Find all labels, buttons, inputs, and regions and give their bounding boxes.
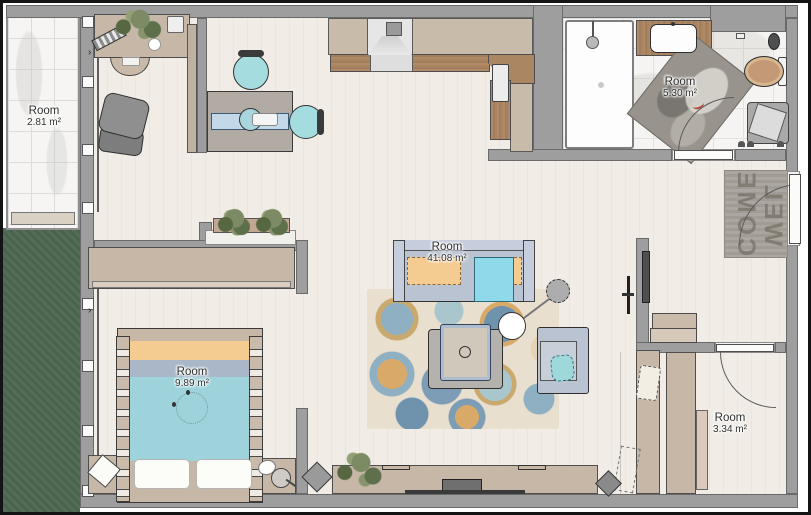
wall [533,5,563,160]
console-handle [518,465,546,470]
wall [735,149,786,161]
slippers-icon [777,141,784,147]
planter-plants [216,208,250,238]
kitchen-counter-front[interactable] [330,54,371,72]
window-handle-icon: › [88,48,91,58]
wall [296,240,308,294]
entry-door[interactable] [789,174,801,244]
wall [197,18,207,153]
desk-plants[interactable] [106,6,168,44]
closet-door[interactable] [716,344,774,352]
window[interactable] [82,202,94,214]
desk-box[interactable] [167,16,184,33]
window[interactable] [82,144,94,156]
cooktop-front [370,54,413,72]
wall [775,342,786,353]
bed-blanket-orange [130,341,252,361]
desk-pad [252,113,278,126]
window[interactable] [82,360,94,372]
bed-deco-dot [172,402,176,407]
tv-screen [405,490,525,494]
coffee-table-handle [459,346,471,358]
floor-plant[interactable] [328,445,388,495]
bedside-lamp[interactable] [271,468,291,488]
tv-bracket [622,293,634,296]
slippers-icon [747,141,754,147]
paper-holder-icon [736,33,745,39]
room-label-bedroom: Room 9.89 m² [152,366,232,389]
sink[interactable] [650,24,697,53]
sofa-armrest [523,240,535,302]
armchair-pillow [550,354,576,382]
toilet-brush-icon [768,33,780,50]
outdoor-grass [2,228,80,513]
slippers-icon [738,141,745,147]
shower-head-icon [586,36,599,49]
planter-plants [254,208,288,238]
hood-chimney [386,22,402,36]
toilet[interactable] [744,56,784,87]
kitchen-sink[interactable] [492,64,509,102]
room-label-living: Room 41.08 m² [407,241,487,264]
bed-rail [116,336,130,502]
kitchen-counter-back[interactable] [328,18,533,55]
bed-deco-circle [176,392,208,424]
entry-bench-seat [650,328,697,343]
wall [786,18,798,172]
pillow [196,459,252,489]
window-handle-icon: › [88,306,91,316]
bathroom-door[interactable] [674,150,733,160]
floor-lamp-shade[interactable] [498,312,526,340]
window[interactable] [82,16,94,28]
wardrobe-front [92,281,291,288]
wall-panel-tv[interactable] [642,251,650,303]
office-cabinet[interactable] [187,24,197,153]
desk-chair-top-back [238,50,264,57]
desk-chair-right-back [317,109,324,135]
wall [786,245,798,494]
room-label-bathroom: Room 5.30 m² [638,76,722,99]
shower-hose [592,21,594,37]
window[interactable] [82,425,94,437]
wall [710,5,786,32]
pillow [134,459,190,489]
desk-chair-top[interactable] [233,54,269,90]
room-label-closet: Room 3.34 m² [688,412,772,435]
stool-cushion [122,57,140,66]
floor-plan-canvas: › › [0,0,811,515]
kitchen-counter-front[interactable] [412,54,490,72]
window[interactable] [82,76,94,88]
bed-deco-dot [186,390,190,395]
floor-lamp-base[interactable] [546,279,570,303]
sofa-armrest [393,240,405,302]
room-label-balcony: Room 2.81 m² [8,105,80,128]
shower-drain [598,82,604,88]
faucet-icon [671,22,675,26]
balcony-sill [11,212,75,225]
